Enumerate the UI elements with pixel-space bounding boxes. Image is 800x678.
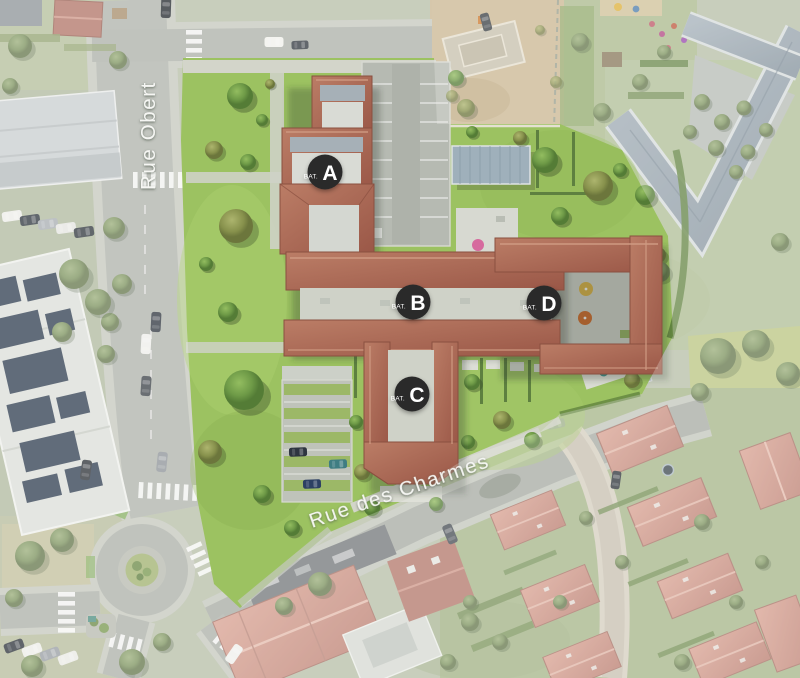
marker-a-letter: A <box>322 162 337 185</box>
marker-a-prefix: BAT. <box>304 174 318 181</box>
marker-d-prefix: BAT. <box>523 305 537 312</box>
marker-c-letter: C <box>409 384 424 407</box>
pink-umbrella <box>472 239 484 251</box>
southwest-parking <box>282 366 352 502</box>
marker-d-letter: D <box>541 293 556 316</box>
marker-c-prefix: BAT. <box>391 396 405 403</box>
marker-b-letter: B <box>410 292 425 315</box>
aerial-canvas: Rue Obert Rue des Charmes BAT. A BAT. B … <box>0 0 800 678</box>
marker-b-prefix: BAT. <box>392 304 406 311</box>
site-plan-map: Rue Obert Rue des Charmes BAT. A BAT. B … <box>0 0 800 678</box>
carport-roof <box>452 146 535 190</box>
street-label-rue-obert: Rue Obert <box>137 81 160 190</box>
